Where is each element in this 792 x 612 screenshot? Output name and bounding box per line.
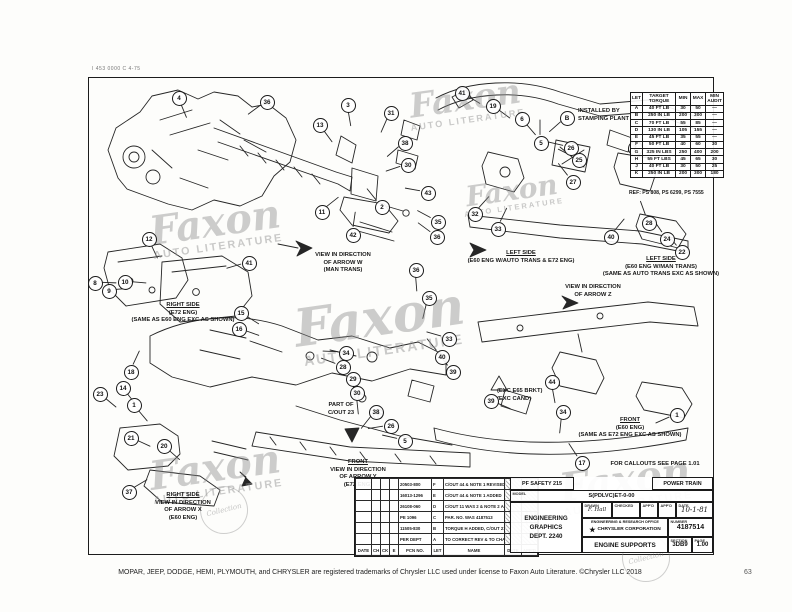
torque-header-cell: TARGET TORQUE (643, 93, 676, 106)
view-label-line: OF ARROW X (155, 507, 211, 515)
leader-line (387, 147, 398, 156)
leader-line (383, 435, 397, 438)
callout-balloon: 12 (142, 232, 157, 247)
view-label-left-side-man-trans: LEFT SIDE(E60 ENG W/MAN TRANS)(SAME AS A… (603, 256, 719, 279)
leader-line (405, 188, 419, 191)
view-label-line: VIEW IN DIRECTION (155, 500, 211, 508)
callout-balloon: 15 (234, 306, 249, 321)
callout-balloon: 44 (545, 375, 560, 390)
callout-balloon: 2 (375, 200, 390, 215)
revision-cell (390, 534, 399, 545)
callout-balloon: 35 (431, 215, 446, 230)
callout-balloon: 22 (675, 245, 690, 260)
torque-cell: 55 FT LBS (643, 156, 676, 163)
torque-cell: B (631, 112, 643, 119)
callout-balloon: 33 (442, 332, 457, 347)
callout-balloon: 24 (660, 232, 675, 247)
torque-row: E45 FT LB3555— (631, 134, 724, 141)
view-label-front-e60: FRONT(E60 ENG)(SAME AS E72 ENG EXC AS SH… (579, 417, 682, 440)
revision-cell (381, 490, 390, 501)
revision-cell: PAR. NO. WAS 4187513 (444, 512, 505, 523)
revision-cell: C/OUT 44 & NOTE 1 ADDED (444, 490, 505, 501)
revision-cell (372, 501, 381, 512)
revision-cell: A (432, 534, 444, 545)
callout-balloon: 4 (172, 91, 187, 106)
leader-line (497, 403, 510, 409)
revision-cell: 11505-830 (399, 523, 432, 534)
torque-cell: C (631, 120, 643, 127)
view-label-line: VIEW IN DIRECTION (330, 467, 386, 475)
callout-balloon: 1 (670, 408, 685, 423)
view-label-line: (SAME AS E72 ENG EXC AS SHOWN) (579, 432, 682, 440)
callout-balloon: 6 (515, 112, 530, 127)
revision-cell (356, 501, 372, 512)
trademark-footer: MOPAR, JEEP, DODGE, HEMI, PLYMOUTH, and … (60, 569, 700, 576)
revision-cell (381, 534, 390, 545)
callout-balloon: 28 (336, 360, 351, 375)
view-label-line: (SAME AS AUTO TRANS EXC AS SHOWN) (603, 271, 719, 279)
model-row: MODEL S(PDLVC)ET-0-00 (510, 490, 713, 502)
revision-header-cell: CK (381, 545, 390, 556)
callout-balloon: 32 (468, 207, 483, 222)
view-label-right-side-arrow-x: RIGHT SIDEVIEW IN DIRECTIONOF ARROW X(E6… (155, 492, 211, 522)
revision-cell: PE 1096 (399, 512, 432, 523)
view-label-line: RIGHT SIDE (132, 302, 235, 310)
torque-row: F50 FT LB406030 (631, 141, 724, 148)
torque-cell: 30 (676, 105, 691, 112)
model-label: MODEL (513, 492, 527, 496)
torque-cell: — (706, 112, 724, 119)
revision-cell (356, 534, 372, 545)
torque-header-cell: MAX (691, 93, 706, 106)
approved-cell-2: APP'D (658, 502, 676, 518)
torque-row: J40 FT LB305025 (631, 163, 724, 170)
torque-cell: H (631, 156, 643, 163)
leader-line (479, 197, 489, 208)
view-label-line: RIGHT SIDE (155, 492, 211, 500)
view-label-line: (E60 ENG) (579, 425, 682, 433)
torque-row: H55 FT LBS456530 (631, 156, 724, 163)
revision-cell (381, 501, 390, 512)
revision-cell: 16013-1296 (399, 490, 432, 501)
leader-line (138, 410, 147, 421)
revision-cell: D (432, 501, 444, 512)
leader-line (552, 388, 555, 402)
leader-line (151, 245, 157, 258)
torque-row: K250 IN LB200300180 (631, 170, 724, 177)
page-label: PAGE (695, 539, 705, 543)
model-value: S(PDLVC)ET-0-00 (511, 491, 712, 501)
callout-balloon: 19 (486, 99, 501, 114)
leader-line (101, 282, 115, 283)
org-line1: ENGINEERING (524, 514, 567, 523)
callout-balloon: B (560, 111, 575, 126)
revision-cell: B (432, 523, 444, 534)
torque-cell: 105 (676, 127, 691, 134)
leader-line (615, 219, 624, 230)
revision-cell (381, 523, 390, 534)
torque-cell: — (706, 127, 724, 134)
leader-line (386, 166, 400, 171)
torque-cell: 60 (691, 141, 706, 148)
view-label-line: (E60 ENG W/MAN TRANS) (603, 264, 719, 272)
torque-cell: — (706, 105, 724, 112)
number-label: NUMBER (671, 520, 688, 524)
torque-cell: 40 FT LB (643, 105, 676, 112)
torque-cell: 300 (691, 112, 706, 119)
callout-balloon: 3 (341, 98, 356, 113)
torque-cell: 200 (676, 112, 691, 119)
revision-cell: 20503-800 (399, 479, 432, 490)
leader-line (131, 282, 145, 283)
view-label-left-side-auto-trans: LEFT SIDE(E60 ENG W/AUTO TRANS & E72 ENG… (468, 250, 575, 265)
callout-balloon: 20 (157, 439, 172, 454)
callout-balloon: 16 (232, 322, 247, 337)
callout-balloon: 13 (313, 118, 328, 133)
page-cell: PAGE 1.00 (692, 537, 713, 553)
torque-cell: 25 (706, 163, 724, 170)
torque-cell: K (631, 170, 643, 177)
view-label-underlined: LEFT SIDE (646, 256, 676, 262)
torque-header-cell: MIN (676, 93, 691, 106)
torque-cell: — (706, 134, 724, 141)
callout-balloon: 30 (350, 386, 365, 401)
leader-line (323, 130, 332, 142)
leader-line (498, 109, 510, 118)
leader-line (526, 124, 535, 135)
revision-cell: TORQUE H ADDED, C/OUT 21 WAS TORQUE B (444, 523, 505, 534)
revision-header-cell: CH (372, 545, 381, 556)
leader-line (348, 111, 350, 125)
drawn-cell: DRAWN F. Hall (582, 502, 612, 518)
drawn-label: DRAWN (585, 504, 599, 508)
date-label: DATE (679, 504, 689, 508)
callout-balloon: 27 (566, 175, 581, 190)
view-label-line: VIEW IN DIRECTION (565, 284, 621, 292)
leader-line (550, 122, 561, 132)
office-cell: ENGINEERING & RESEARCH OFFICE ★ CHRYSLER… (582, 518, 668, 537)
revision-cell (381, 512, 390, 523)
company-name: CHRYSLER CORPORATION (598, 527, 661, 532)
dept-line: DEPT. 2240 (529, 532, 562, 541)
leader-line (169, 450, 180, 460)
revision-cell (356, 479, 372, 490)
revision-cell (372, 512, 381, 523)
view-label-part-of-cout-23: PART OFC/OUT 23 (328, 402, 354, 417)
callout-balloon: 34 (339, 346, 354, 361)
revision-cell: 26108-060 (399, 501, 432, 512)
torque-cell: 155 (691, 127, 706, 134)
revision-cell: PER DEPT (399, 534, 432, 545)
torque-header-row: LETTARGET TORQUEMINMAXMIN AUDIT (631, 93, 724, 106)
revision-cell: F (432, 479, 444, 490)
torque-row: C70 FT LB5585— (631, 120, 724, 127)
torque-cell: 50 (691, 105, 706, 112)
revision-cell (390, 523, 399, 534)
dept-cell: ENGINEERING GRAPHICS DEPT. 2240 (510, 502, 582, 553)
callout-balloon: 41 (242, 256, 257, 271)
torque-cell: 50 (691, 163, 706, 170)
view-label-line: (EXC CAND) (497, 396, 542, 404)
view-label-installed-by-stamping: INSTALLED BYSTAMPING PLANT (578, 108, 629, 123)
torque-cell: 85 (691, 120, 706, 127)
revision-header-cell: NAME (444, 545, 505, 556)
torque-cell: J (631, 163, 643, 170)
revision-header-cell: E (390, 545, 399, 556)
callout-balloon: 9 (102, 284, 117, 299)
leader-line (558, 164, 567, 175)
leader-line (133, 351, 139, 364)
view-label-line: (EXC E65 BRKT) (497, 388, 542, 396)
torque-cell: 35 (676, 134, 691, 141)
callout-balloon: 25 (572, 153, 587, 168)
callout-balloon: 38 (398, 136, 413, 151)
callout-balloon: 10 (118, 275, 133, 290)
torque-header-cell: MIN AUDIT (706, 93, 724, 106)
title-block: PF SAFETY 215 POWER TRAIN MODEL S(PDLVC)… (510, 477, 713, 553)
leader-line (416, 276, 417, 290)
leader-line (105, 398, 116, 407)
view-label-line: FOR CALLOUTS SEE PAGE 1.01 (610, 461, 699, 469)
callout-balloon: 31 (384, 106, 399, 121)
leader-line (640, 201, 645, 215)
callout-balloon: 36 (430, 230, 445, 245)
callout-balloon: 5 (534, 136, 549, 151)
torque-cell: 325 IN LBS (643, 149, 676, 156)
view-label-line: LEFT SIDE (603, 256, 719, 264)
view-label-line: (SAME AS E60 ENG EXC AS SHOWN) (132, 317, 235, 325)
torque-cell: 45 (676, 156, 691, 163)
torque-cell: 45 FT LB (643, 134, 676, 141)
view-label-line: (E60 ENG) (155, 515, 211, 523)
leader-line (427, 332, 441, 336)
leader-line (353, 212, 355, 226)
callout-balloon: 14 (116, 381, 131, 396)
date-cell: DATE 10-1-81 (676, 502, 713, 518)
drawing-title: ENGINE SUPPORTS (582, 537, 668, 553)
callout-balloon: 35 (422, 291, 437, 306)
leader-line (381, 119, 387, 132)
view-label-line: STAMPING PLANT (578, 116, 629, 124)
torque-cell: 30 (706, 156, 724, 163)
torque-row: A40 FT LB3050— (631, 105, 724, 112)
torque-cell: — (706, 120, 724, 127)
pf-safety-stamp: PF SAFETY 215 (510, 477, 574, 490)
torque-cell: 30 (706, 141, 724, 148)
view-label-line: OF ARROW W (315, 260, 371, 268)
office-label: ENGINEERING & RESEARCH OFFICE (583, 520, 667, 524)
view-label-right-side-e72: RIGHT SIDE(E72 ENG)(SAME AS E60 ENG EXC … (132, 302, 235, 325)
torque-cell: G (631, 149, 643, 156)
torque-cell: 400 (691, 149, 706, 156)
torque-cell: 180 (706, 170, 724, 177)
leader-line (245, 331, 259, 336)
revision-cell (356, 512, 372, 523)
leader-line (181, 104, 187, 117)
torque-cell: D (631, 127, 643, 134)
section-cell: SECTION 3DB9 (668, 537, 692, 553)
approved-label: APP'D (661, 504, 672, 508)
leader-line (560, 418, 562, 432)
view-label-callouts-note: FOR CALLOUTS SEE PAGE 1.01 (610, 461, 699, 469)
revision-cell (390, 501, 399, 512)
torque-table: LETTARGET TORQUEMINMAXMIN AUDITA40 FT LB… (630, 92, 724, 178)
page-number: 63 (744, 569, 752, 576)
view-label-view-arrow-z: VIEW IN DIRECTIONOF ARROW Z (565, 284, 621, 299)
revision-cell (356, 490, 372, 501)
callout-balloon: 39 (446, 365, 461, 380)
torque-cell: 40 (676, 141, 691, 148)
section-label: SECTION (671, 539, 688, 543)
torque-cell: F (631, 141, 643, 148)
revision-cell (356, 523, 372, 534)
view-label-line: OF ARROW Z (565, 292, 621, 300)
revision-cell (372, 534, 381, 545)
torque-cell: 250 (676, 149, 691, 156)
approved-label: APP'D (643, 504, 654, 508)
callout-balloon: 41 (455, 86, 470, 101)
view-label-line: (E60 ENG W/AUTO TRANS & E72 ENG) (468, 258, 575, 266)
leader-line (321, 358, 335, 363)
leader-line (418, 223, 430, 232)
power-train-stamp: POWER TRAIN (652, 477, 713, 490)
callout-balloon: 40 (435, 350, 450, 365)
torque-cell: 65 (691, 156, 706, 163)
callout-balloon: 29 (346, 372, 361, 387)
revision-cell (372, 523, 381, 534)
callout-balloon: 37 (122, 485, 137, 500)
approved-cell-1: APP'D (640, 502, 658, 518)
scanned-drawing-page: I 453 0000 C 4-75 (0, 0, 792, 612)
view-label-line: (MAN TRANS) (315, 267, 371, 275)
checked-label: CHECKED (615, 504, 634, 508)
chrysler-pentastar-icon: ★ (589, 526, 595, 534)
revision-cell (390, 479, 399, 490)
view-label-line: INSTALLED BY (578, 108, 629, 116)
view-label-underlined: LEFT SIDE (506, 250, 536, 256)
view-label-exc-e65-brkt: (EXC E65 BRKT)(EXC CAND) (497, 388, 542, 403)
revision-header-cell: PCN NO. (399, 545, 432, 556)
callout-balloon: 18 (124, 365, 139, 380)
callout-balloon: 42 (346, 228, 361, 243)
callout-balloon: 26 (384, 419, 399, 434)
callout-balloon: 39 (484, 394, 499, 409)
callout-balloon: 36 (409, 263, 424, 278)
revision-cell (372, 479, 381, 490)
number-cell: NUMBER 4187514 (668, 518, 713, 537)
callout-balloon: 21 (124, 431, 139, 446)
view-label-line: VIEW IN DIRECTION (315, 252, 371, 260)
revision-cell (390, 512, 399, 523)
revision-cell: TO CORRECT REV & TO CHANGE REV (444, 534, 505, 545)
leader-line (357, 399, 359, 413)
torque-cell: 55 (676, 120, 691, 127)
callout-balloon: 8 (88, 276, 103, 291)
callout-balloon: 17 (575, 456, 590, 471)
torque-cell: A (631, 105, 643, 112)
checked-cell: CHECKED (612, 502, 640, 518)
torque-cell: 200 (706, 149, 724, 156)
callout-balloon: 11 (315, 205, 330, 220)
revision-cell (390, 490, 399, 501)
view-label-line: PART OF (328, 402, 354, 410)
view-label-underlined: FRONT (348, 459, 368, 465)
torque-cell: 55 (691, 134, 706, 141)
view-label-underlined: RIGHT SIDE (166, 302, 199, 308)
torque-ref-note: REF: PS 808, PS 6299, PS 7555 (629, 190, 704, 196)
torque-row: B250 IN LB200300— (631, 112, 724, 119)
leader-line (418, 211, 431, 218)
leader-line (368, 426, 382, 428)
revision-header-cell: DATE (356, 545, 372, 556)
org-line2: GRAPHICS (530, 523, 563, 532)
view-label-line: (E72 ENG) (132, 310, 235, 318)
torque-row: G325 IN LBS250400200 (631, 149, 724, 156)
callout-balloon: 36 (260, 95, 275, 110)
leader-line (423, 304, 426, 318)
torque-cell: 250 IN LB (643, 112, 676, 119)
leader-line (137, 440, 150, 446)
torque-cell: E (631, 134, 643, 141)
torque-cell: 300 (691, 170, 706, 177)
torque-cell: 130 IN LB (643, 127, 676, 134)
view-label-line: LEFT SIDE (468, 250, 575, 258)
torque-table-wrap: LETTARGET TORQUEMINMAXMIN AUDITA40 FT LB… (630, 92, 724, 178)
callout-balloon: 40 (604, 230, 619, 245)
callout-balloon: 1 (127, 398, 142, 413)
callout-balloon: 23 (93, 387, 108, 402)
revision-cell (381, 479, 390, 490)
callout-balloon: 5 (398, 434, 413, 449)
torque-cell: 40 FT LB (643, 163, 676, 170)
torque-header-cell: LET (631, 93, 643, 106)
torque-cell: 50 FT LB (643, 141, 676, 148)
view-label-underlined: RIGHT SIDE (166, 492, 199, 498)
leader-line (327, 197, 338, 206)
torque-cell: 250 IN LB (643, 170, 676, 177)
view-label-underlined: FRONT (620, 417, 640, 423)
callout-balloon: 33 (491, 222, 506, 237)
torque-row: D130 IN LB105155— (631, 127, 724, 134)
revision-cell (372, 490, 381, 501)
torque-cell: 70 FT LB (643, 120, 676, 127)
callout-balloon: 34 (556, 405, 571, 420)
torque-cell: 200 (676, 170, 691, 177)
view-label-line: FRONT (579, 417, 682, 425)
callout-balloon: 38 (369, 405, 384, 420)
revision-cell: C (432, 512, 444, 523)
revision-cell: E (432, 490, 444, 501)
revision-cell: C/OUT 44 & NOTE 1 REVISED (444, 479, 505, 490)
revision-cell: C/OUT 11 WAS 2 & NOTE 2 ADDED (444, 501, 505, 512)
view-label-view-arrow-w: VIEW IN DIRECTIONOF ARROW W(MAN TRANS) (315, 252, 371, 275)
callout-balloon: 43 (421, 186, 436, 201)
view-label-line: FRONT (330, 459, 386, 467)
revision-header-cell: LET (432, 545, 444, 556)
torque-cell: 30 (676, 163, 691, 170)
callout-balloon: 30 (401, 158, 416, 173)
view-label-line: C/OUT 23 (328, 410, 354, 418)
callout-balloon: 28 (642, 216, 657, 231)
